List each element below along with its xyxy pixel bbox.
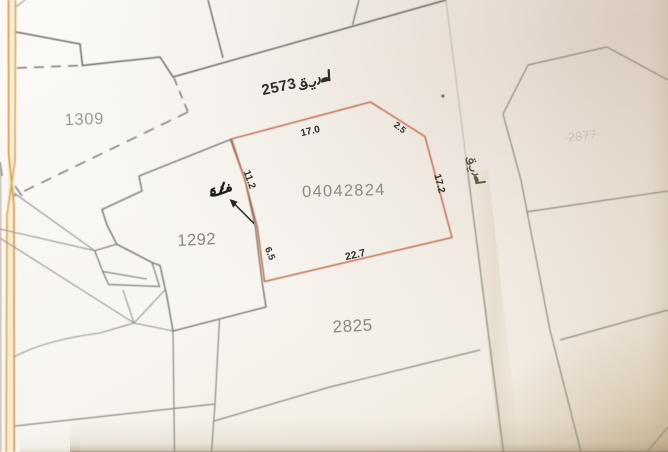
svg-text:1292: 1292 [177, 230, 217, 250]
svg-text:1309: 1309 [64, 110, 104, 129]
svg-text:2825: 2825 [332, 315, 373, 336]
svg-text:04042824: 04042824 [302, 181, 386, 201]
